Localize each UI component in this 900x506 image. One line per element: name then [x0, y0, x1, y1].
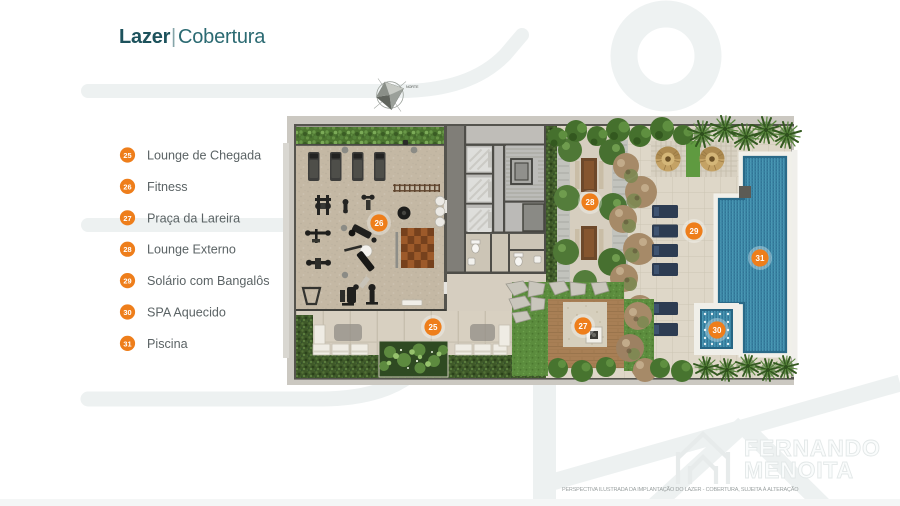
svg-text:27: 27	[579, 322, 588, 331]
svg-text:MENOITA: MENOITA	[744, 457, 854, 483]
svg-text:30: 30	[713, 326, 722, 335]
svg-text:Lounge Externo: Lounge Externo	[147, 243, 236, 257]
svg-text:26: 26	[375, 219, 384, 228]
svg-text:|: |	[171, 26, 176, 48]
svg-text:25: 25	[429, 323, 438, 332]
svg-text:25: 25	[123, 151, 131, 160]
svg-text:31: 31	[756, 254, 765, 263]
svg-text:26: 26	[123, 182, 131, 191]
svg-text:Solário com Bangalôs: Solário com Bangalôs	[147, 274, 270, 288]
svg-text:Lazer: Lazer	[119, 26, 171, 48]
svg-text:Cobertura: Cobertura	[178, 26, 266, 48]
svg-text:NORTE: NORTE	[406, 85, 419, 89]
svg-text:31: 31	[123, 339, 131, 348]
svg-text:27: 27	[123, 214, 131, 223]
svg-text:29: 29	[690, 227, 699, 236]
svg-text:PERSPECTIVA ILUSTRADA DA IMPLA: PERSPECTIVA ILUSTRADA DA IMPLANTAÇÃO DO …	[562, 486, 799, 493]
svg-text:28: 28	[586, 198, 595, 207]
svg-text:28: 28	[123, 245, 131, 254]
svg-text:30: 30	[123, 308, 131, 317]
svg-text:Praça da Lareira: Praça da Lareira	[147, 211, 240, 225]
svg-text:29: 29	[123, 277, 131, 286]
svg-text:Fitness: Fitness	[147, 180, 188, 194]
svg-text:Lounge de Chegada: Lounge de Chegada	[147, 149, 261, 163]
svg-text:Piscina: Piscina	[147, 337, 188, 351]
svg-text:SPA Aquecido: SPA Aquecido	[147, 306, 226, 320]
